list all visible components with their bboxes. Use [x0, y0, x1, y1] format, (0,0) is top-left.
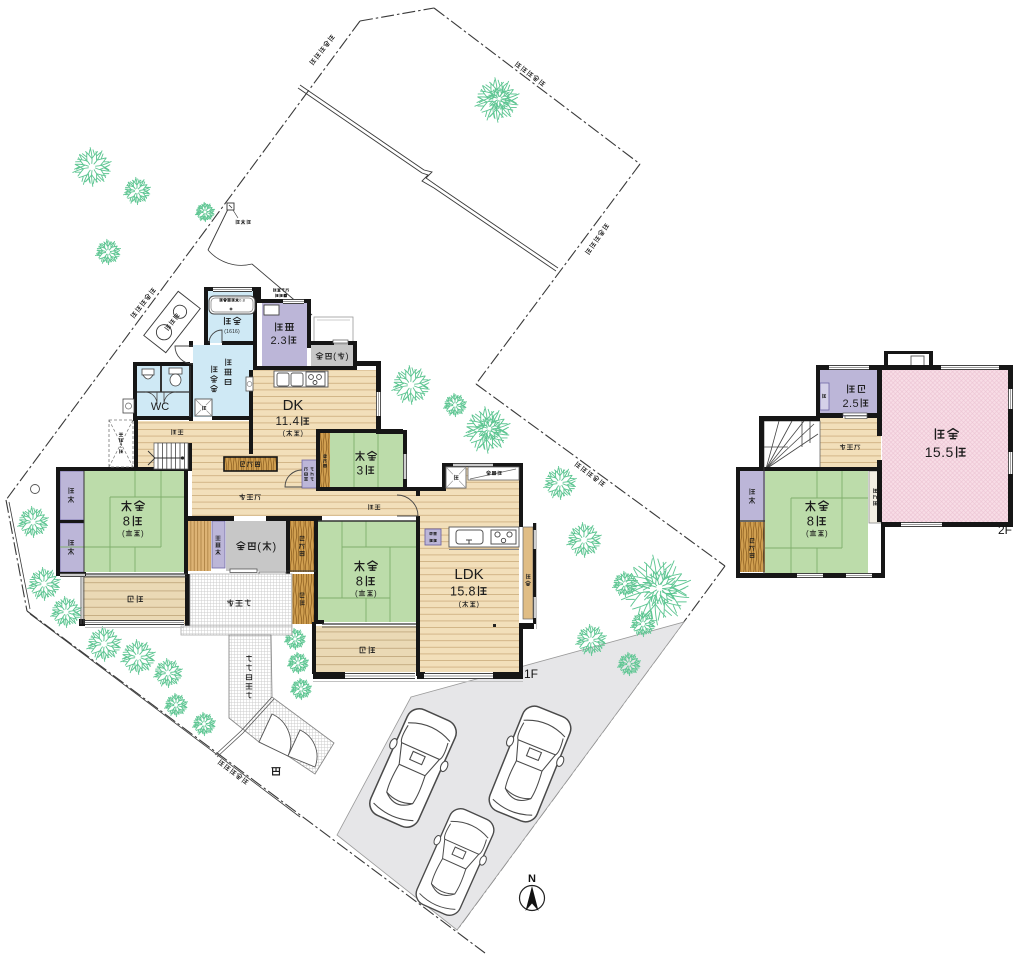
- svg-text:11.4: 11.4: [276, 416, 300, 428]
- svg-text:8: 8: [807, 514, 814, 529]
- svg-text:8: 8: [356, 574, 363, 589]
- svg-text:2F: 2F: [998, 523, 1012, 537]
- svg-text:1F: 1F: [524, 667, 538, 681]
- svg-text:15.5: 15.5: [925, 444, 954, 460]
- svg-text:15.8: 15.8: [450, 585, 476, 599]
- svg-text:(: (: [333, 351, 336, 361]
- svg-text:(: (: [257, 541, 261, 553]
- svg-text:(: (: [355, 589, 358, 598]
- svg-text:): ): [141, 529, 144, 538]
- svg-text:0.8: 0.8: [239, 297, 246, 302]
- svg-text:2.5: 2.5: [843, 398, 859, 410]
- svg-text:(1616): (1616): [224, 329, 240, 335]
- svg-text:8: 8: [123, 514, 130, 529]
- svg-text:2.3: 2.3: [271, 335, 287, 347]
- svg-text:3: 3: [357, 463, 364, 477]
- svg-text:): ): [346, 351, 349, 361]
- svg-text:2: 2: [120, 444, 123, 450]
- svg-text:(: (: [122, 529, 125, 538]
- svg-text:DK: DK: [283, 397, 304, 414]
- svg-text:WC: WC: [151, 401, 169, 413]
- svg-text:N: N: [528, 873, 536, 885]
- svg-text:): ): [825, 529, 828, 538]
- svg-text:): ): [273, 541, 277, 553]
- svg-text:): ): [374, 589, 377, 598]
- svg-text:LDK: LDK: [454, 566, 483, 583]
- svg-text:(: (: [806, 529, 809, 538]
